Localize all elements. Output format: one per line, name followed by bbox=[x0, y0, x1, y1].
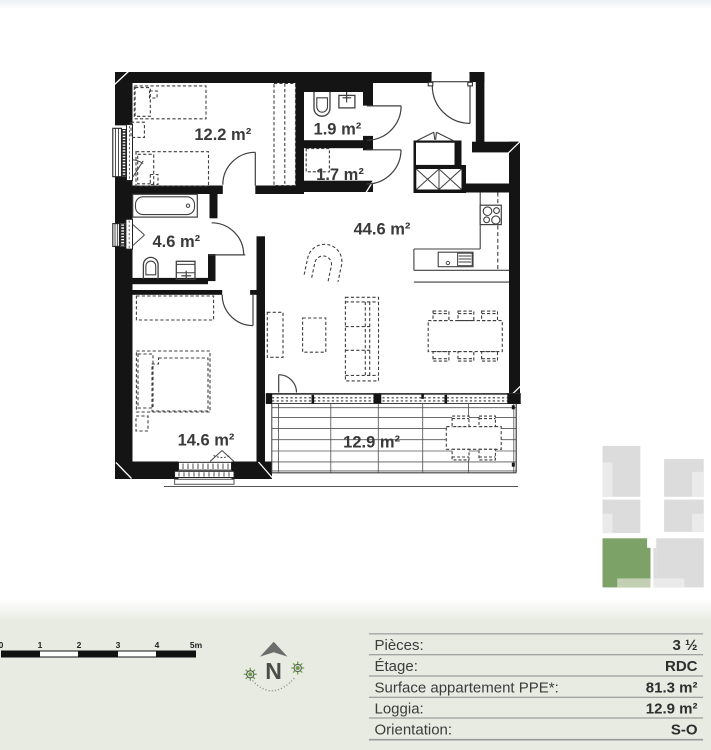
svg-text:1: 1 bbox=[38, 640, 43, 650]
svg-text:4: 4 bbox=[155, 640, 160, 650]
svg-text:81.3 m²: 81.3 m² bbox=[646, 679, 698, 696]
svg-text:14.6 m²: 14.6 m² bbox=[178, 432, 235, 450]
svg-text:12.9 m²: 12.9 m² bbox=[646, 700, 698, 717]
svg-text:1.7 m²: 1.7 m² bbox=[316, 166, 364, 184]
svg-text:RDC: RDC bbox=[665, 658, 698, 675]
svg-text:5m: 5m bbox=[190, 640, 203, 650]
svg-text:2: 2 bbox=[77, 640, 82, 650]
svg-text:Loggia:: Loggia: bbox=[375, 700, 424, 717]
svg-text:N: N bbox=[265, 658, 282, 684]
svg-text:Orientation:: Orientation: bbox=[375, 722, 453, 739]
svg-text:4.6 m²: 4.6 m² bbox=[152, 233, 200, 251]
svg-text:3 ½: 3 ½ bbox=[672, 637, 697, 654]
svg-text:1.9 m²: 1.9 m² bbox=[314, 121, 362, 139]
svg-text:Surface appartement PPE*:: Surface appartement PPE*: bbox=[375, 679, 559, 696]
svg-text:0: 0 bbox=[0, 640, 4, 650]
svg-text:12.9 m²: 12.9 m² bbox=[343, 433, 400, 451]
svg-text:44.6 m²: 44.6 m² bbox=[354, 220, 411, 238]
svg-text:3: 3 bbox=[116, 640, 121, 650]
svg-text:Étage:: Étage: bbox=[375, 658, 418, 675]
svg-text:12.2 m²: 12.2 m² bbox=[194, 126, 251, 144]
svg-text:Pièces:: Pièces: bbox=[375, 637, 424, 654]
svg-text:S-O: S-O bbox=[671, 722, 698, 739]
